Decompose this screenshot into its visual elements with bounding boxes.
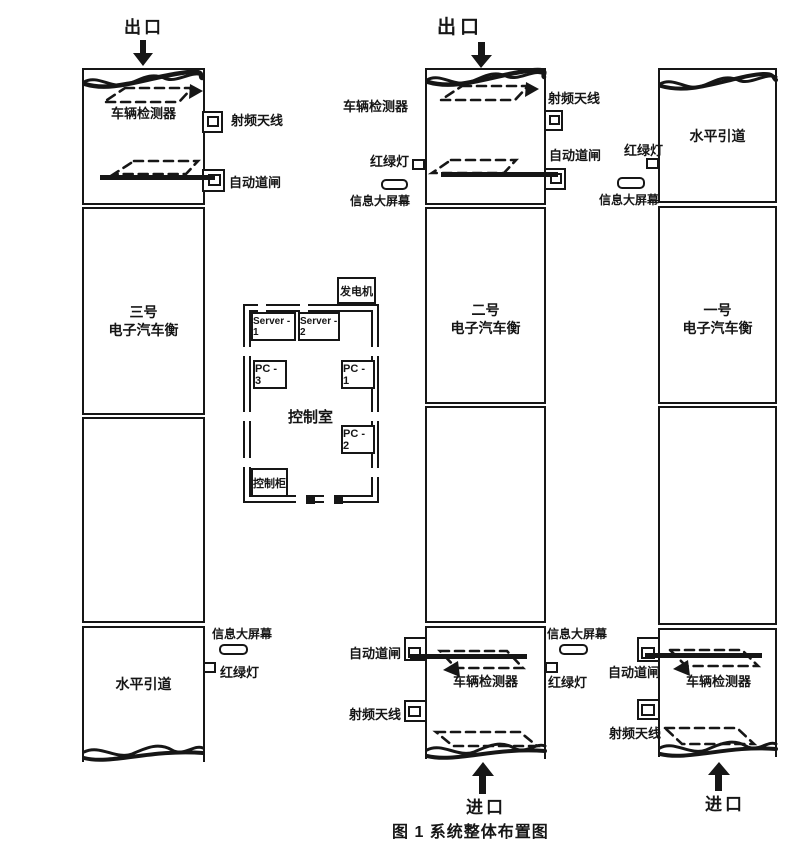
rf-antenna-label: 射频天线 — [609, 727, 661, 740]
entrance-arrow-icon — [708, 762, 730, 791]
wall-opening — [240, 458, 252, 467]
door-opening — [296, 494, 306, 506]
exit-label: 出口 — [437, 18, 483, 37]
lane-number: 三号 — [130, 304, 158, 320]
wall-opening — [370, 412, 382, 421]
auto-barrier-label: 自动道闸 — [549, 149, 601, 162]
traffic-light-label: 红绿灯 — [220, 666, 259, 679]
traffic-light-label: 红绿灯 — [548, 676, 587, 689]
entrance-label: 进口 — [466, 799, 506, 816]
vehicle-detector-label: 车辆检测器 — [660, 675, 777, 688]
exit-arrow-icon — [133, 40, 153, 66]
traffic-light-icon — [412, 159, 425, 170]
traffic-light-icon — [545, 662, 558, 673]
lane1-detector-zone — [658, 628, 777, 757]
wall-opening — [240, 347, 252, 356]
lane-type: 电子汽车衡 — [109, 322, 179, 338]
rf-antenna-label: 射频天线 — [548, 92, 600, 105]
control-room-label: 控制室 — [288, 410, 333, 425]
door-post — [306, 497, 315, 504]
control-cabinet-label: 控制柜 — [253, 475, 286, 491]
traffic-light-icon — [646, 158, 659, 169]
lane-type: 电子汽车衡 — [451, 320, 521, 336]
rf-antenna-label: 射频天线 — [231, 114, 283, 127]
auto-barrier-label: 自动道闸 — [349, 647, 401, 660]
exit-label: 出口 — [124, 19, 164, 36]
pc1-label: PC - 1 — [343, 363, 373, 387]
pc2-label: PC - 2 — [343, 428, 373, 452]
server2-label: Server - 2 — [300, 316, 338, 338]
info-screen-icon — [381, 179, 408, 190]
lane3-approach-zone — [82, 626, 205, 762]
wall-opening — [370, 347, 382, 356]
traffic-light-icon — [203, 662, 216, 673]
level-approach-label: 水平引道 — [658, 129, 777, 143]
traffic-light-label: 红绿灯 — [370, 155, 409, 168]
auto-barrier-label: 自动道闸 — [229, 176, 281, 189]
rf-antenna-icon — [641, 704, 655, 716]
generator-label: 发电机 — [340, 283, 373, 299]
lane-type: 电子汽车衡 — [683, 320, 753, 336]
lane1-name: 一号 电子汽车衡 — [658, 302, 777, 337]
figure-caption: 图 1 系统整体布置图 — [392, 825, 549, 841]
info-screen-icon — [559, 644, 588, 655]
server2-box: Server - 2 — [298, 312, 340, 341]
auto-barrier-label: 自动道闸 — [608, 666, 660, 679]
vehicle-detector-label: 车辆检测器 — [343, 100, 408, 113]
entrance-arrow-icon — [472, 762, 494, 794]
lane2-scale-platform-2 — [425, 406, 546, 623]
rf-antenna-label: 射频天线 — [349, 708, 401, 721]
lane2-detector-zone-bottom — [425, 626, 546, 759]
traffic-light-label: 红绿灯 — [624, 144, 663, 157]
lane2-name: 二号 电子汽车衡 — [425, 302, 546, 337]
lane-number: 一号 — [704, 302, 732, 318]
server1-label: Server - 1 — [253, 316, 294, 338]
wall-opening — [370, 468, 382, 477]
info-screen-label: 信息大屏幕 — [212, 628, 272, 640]
barrier-motor-icon — [641, 647, 655, 659]
entrance-label: 进口 — [705, 796, 745, 813]
system-layout-figure: 发电机 Server - 1 Server - 2 PC - 3 PC - 1 … — [0, 0, 799, 854]
generator-box: 发电机 — [337, 277, 376, 304]
lane3-detector-zone — [82, 68, 205, 205]
server1-box: Server - 1 — [251, 312, 296, 341]
vehicle-detector-label: 车辆检测器 — [425, 675, 546, 688]
lane3-scale-platform-2 — [82, 417, 205, 623]
control-cabinet-box: 控制柜 — [251, 468, 288, 497]
door-opening — [324, 494, 334, 506]
pc1-box: PC - 1 — [341, 360, 375, 389]
vehicle-detector-label: 车辆检测器 — [82, 107, 205, 120]
info-screen-label: 信息大屏幕 — [547, 628, 607, 640]
barrier-motor-icon — [208, 174, 221, 186]
pc3-box: PC - 3 — [253, 360, 287, 389]
lane1-scale-platform-2 — [658, 406, 777, 625]
info-screen-icon — [219, 644, 248, 655]
lane3-name: 三号 电子汽车衡 — [82, 304, 205, 339]
exit-arrow-icon — [471, 42, 492, 68]
rf-antenna-icon — [408, 706, 421, 717]
lane-number: 二号 — [472, 302, 500, 318]
barrier-motor-icon — [408, 647, 421, 658]
barrier-motor-icon — [550, 173, 562, 184]
wall-opening — [240, 412, 252, 421]
rf-antenna-icon — [207, 116, 219, 127]
door-post — [334, 497, 343, 504]
level-approach-label: 水平引道 — [82, 677, 205, 691]
lane2-detector-zone-top — [425, 68, 546, 205]
info-screen-label: 信息大屏幕 — [599, 194, 659, 206]
pc2-box: PC - 2 — [341, 425, 375, 454]
info-screen-label: 信息大屏幕 — [350, 195, 410, 207]
info-screen-icon — [617, 177, 645, 189]
pc3-label: PC - 3 — [255, 363, 285, 387]
rf-antenna-icon — [549, 115, 560, 125]
